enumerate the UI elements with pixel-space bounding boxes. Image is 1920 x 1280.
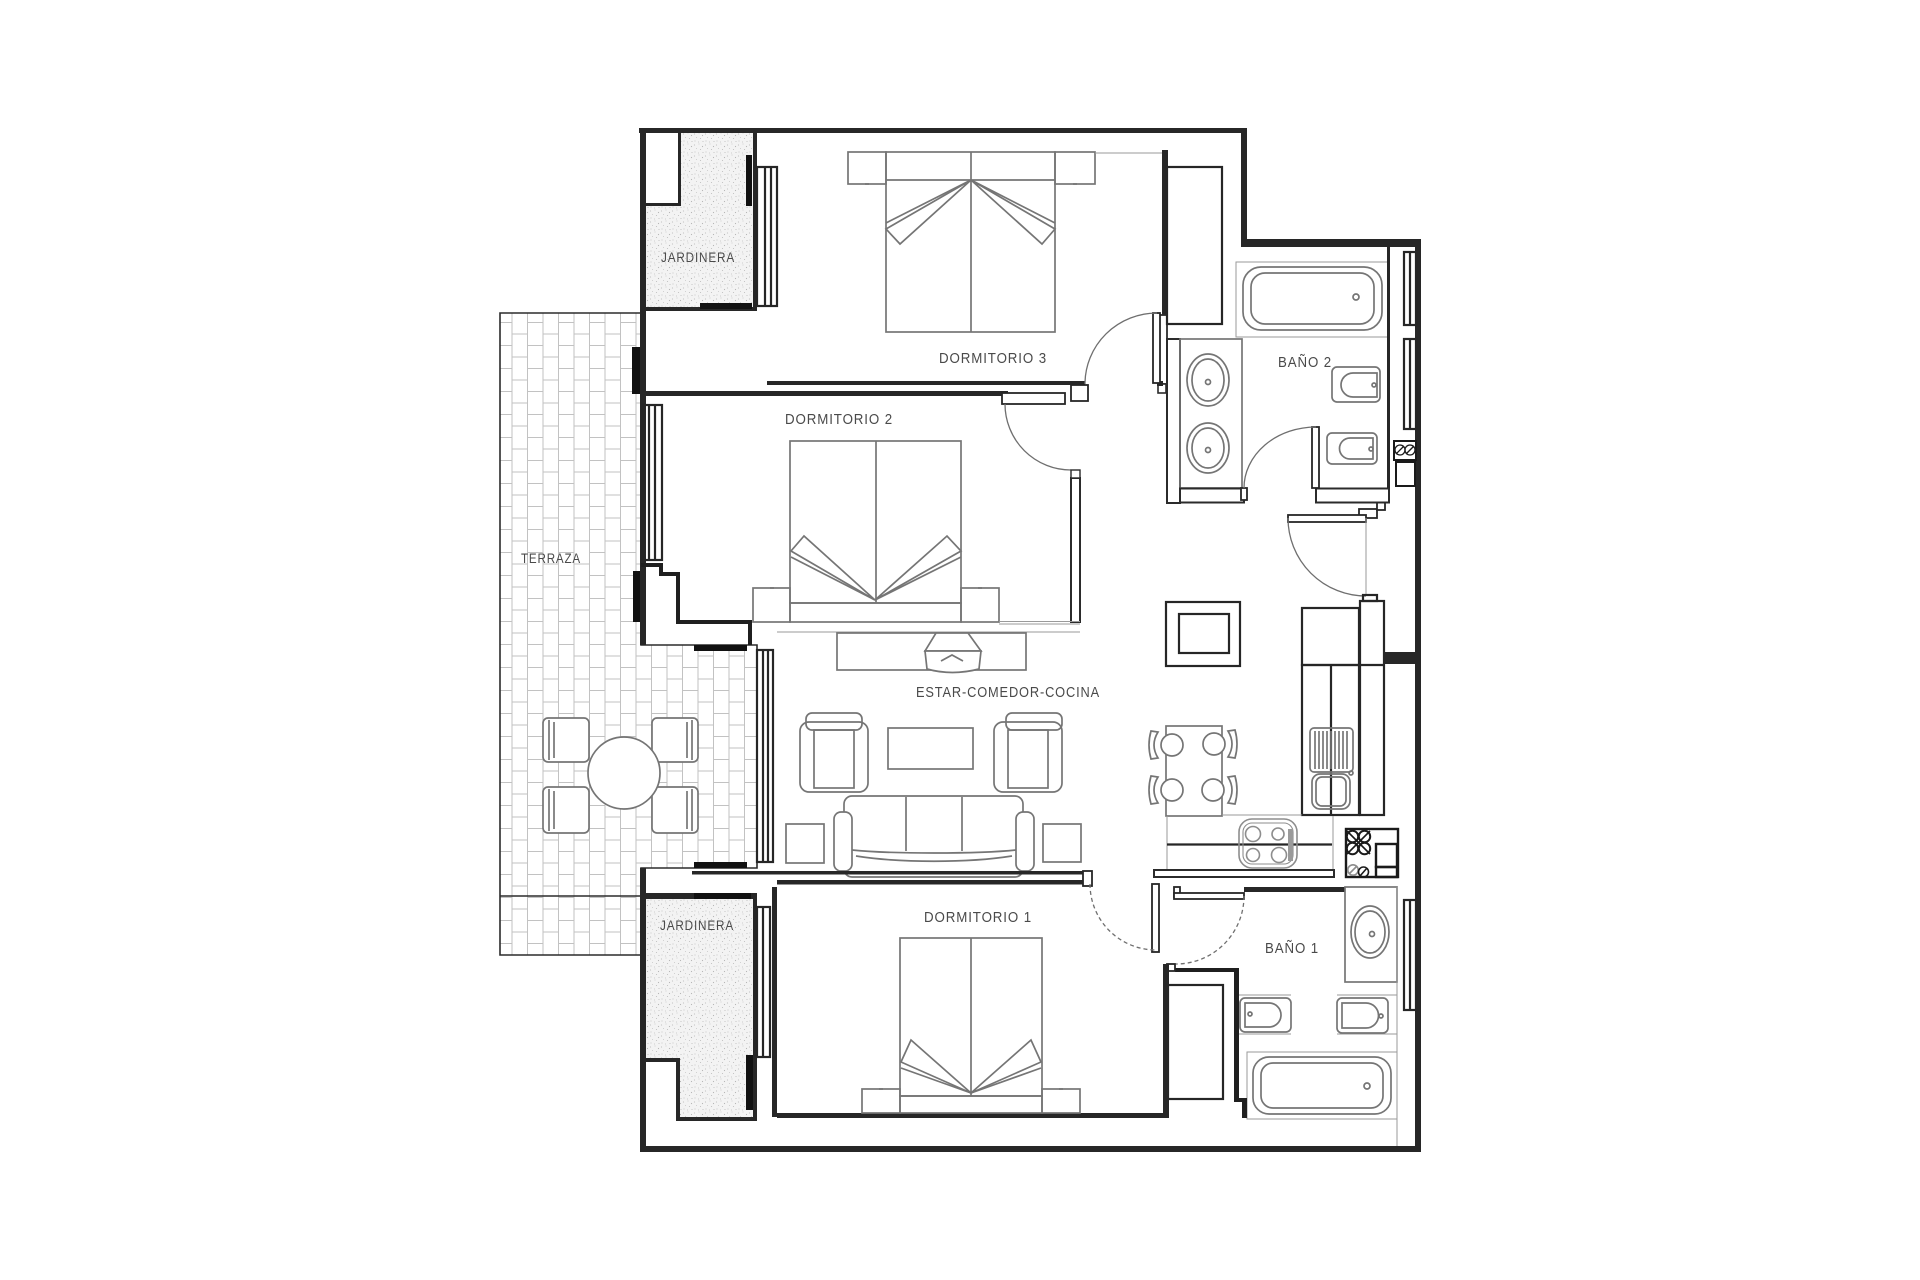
svg-text:JARDINERA: JARDINERA — [660, 917, 734, 933]
svg-text:BAÑO 1: BAÑO 1 — [1265, 940, 1319, 957]
svg-text:DORMITORIO 1: DORMITORIO 1 — [924, 909, 1032, 926]
svg-text:TERRAZA: TERRAZA — [521, 550, 581, 566]
svg-text:JARDINERA: JARDINERA — [661, 249, 735, 265]
svg-text:DORMITORIO 2: DORMITORIO 2 — [785, 411, 893, 428]
svg-text:DORMITORIO 3: DORMITORIO 3 — [939, 350, 1047, 367]
svg-text:BAÑO 2: BAÑO 2 — [1278, 354, 1332, 371]
svg-text:ESTAR-COMEDOR-COCINA: ESTAR-COMEDOR-COCINA — [916, 684, 1100, 701]
